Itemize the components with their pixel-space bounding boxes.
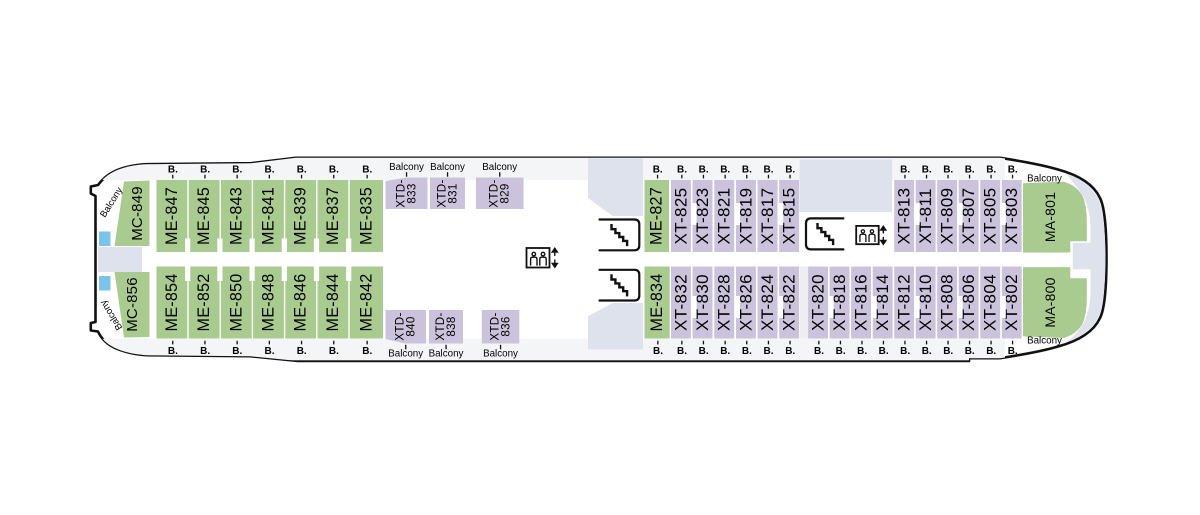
svg-text:B.: B. — [986, 165, 996, 176]
svg-text:XT-809: XT-809 — [938, 188, 957, 245]
svg-text:XT-808: XT-808 — [938, 274, 957, 331]
svg-text:ME-842: ME-842 — [357, 274, 375, 332]
svg-text:B.: B. — [900, 346, 910, 357]
svg-text:B.: B. — [785, 165, 795, 176]
svg-text:836: 836 — [499, 316, 512, 336]
svg-text:B.: B. — [232, 346, 242, 357]
svg-text:XT-820: XT-820 — [809, 274, 828, 331]
svg-text:B.: B. — [168, 346, 178, 357]
svg-text:B.: B. — [362, 165, 372, 176]
svg-text:833: 833 — [405, 183, 418, 203]
svg-text:B.: B. — [785, 346, 795, 357]
svg-text:B.: B. — [232, 165, 242, 176]
svg-text:B.: B. — [329, 165, 339, 176]
svg-text:B.: B. — [677, 346, 687, 357]
svg-text:B.: B. — [836, 346, 846, 357]
svg-text:ME-852: ME-852 — [195, 274, 213, 332]
svg-text:ME-848: ME-848 — [260, 274, 278, 332]
svg-text:B.: B. — [265, 165, 275, 176]
svg-text:XT-832: XT-832 — [672, 274, 691, 331]
svg-text:ME-844: ME-844 — [324, 274, 342, 332]
svg-text:B.: B. — [764, 165, 774, 176]
svg-text:B.: B. — [677, 165, 687, 176]
svg-text:ME-835: ME-835 — [357, 187, 375, 245]
svg-text:B.: B. — [922, 346, 932, 357]
svg-text:B.: B. — [720, 346, 730, 357]
svg-text:B.: B. — [879, 346, 889, 357]
svg-text:Balcony: Balcony — [430, 162, 465, 173]
svg-text:XT-805: XT-805 — [981, 188, 1000, 245]
svg-text:B.: B. — [965, 165, 975, 176]
svg-text:XT-804: XT-804 — [981, 274, 1000, 331]
svg-text:ME-843: ME-843 — [227, 187, 245, 245]
svg-text:Balcony: Balcony — [429, 348, 464, 359]
svg-text:MA-800: MA-800 — [1042, 277, 1058, 327]
svg-text:ME-854: ME-854 — [163, 274, 181, 332]
svg-text:ME-841: ME-841 — [260, 187, 278, 245]
svg-text:B.: B. — [200, 346, 210, 357]
svg-text:B.: B. — [1008, 346, 1018, 357]
svg-text:XT-828: XT-828 — [715, 274, 734, 331]
svg-text:MA-801: MA-801 — [1042, 192, 1058, 242]
svg-text:B.: B. — [943, 346, 953, 357]
svg-text:XT-816: XT-816 — [852, 274, 871, 331]
svg-text:ME-827: ME-827 — [648, 187, 666, 245]
svg-text:XT-813: XT-813 — [895, 188, 914, 245]
svg-text:ME-837: ME-837 — [324, 187, 342, 245]
svg-text:B.: B. — [1008, 165, 1018, 176]
svg-text:Balcony: Balcony — [389, 162, 424, 173]
svg-text:XT-821: XT-821 — [715, 188, 734, 245]
svg-text:Balcony: Balcony — [482, 162, 517, 173]
svg-text:831: 831 — [446, 183, 459, 203]
svg-text:B.: B. — [265, 346, 275, 357]
svg-text:Balcony: Balcony — [1027, 335, 1062, 346]
svg-text:B.: B. — [965, 346, 975, 357]
svg-text:MC-856: MC-856 — [124, 277, 141, 332]
svg-text:B.: B. — [720, 165, 730, 176]
svg-text:Balcony: Balcony — [1027, 173, 1062, 184]
svg-text:ME-839: ME-839 — [292, 187, 310, 245]
svg-text:MC-849: MC-849 — [129, 186, 146, 241]
svg-text:B.: B. — [900, 165, 910, 176]
svg-text:ME-846: ME-846 — [292, 274, 310, 332]
svg-text:B.: B. — [653, 346, 663, 357]
svg-text:B.: B. — [329, 346, 339, 357]
svg-text:B.: B. — [362, 346, 372, 357]
svg-text:B.: B. — [653, 165, 663, 176]
svg-text:XT-825: XT-825 — [672, 188, 691, 245]
svg-text:B.: B. — [699, 165, 709, 176]
svg-text:B.: B. — [742, 346, 752, 357]
svg-text:840: 840 — [405, 316, 418, 336]
svg-text:838: 838 — [445, 316, 458, 336]
svg-text:829: 829 — [499, 183, 512, 203]
svg-text:ME-834: ME-834 — [648, 274, 666, 332]
svg-text:ME-850: ME-850 — [227, 274, 245, 332]
svg-text:ME-847: ME-847 — [163, 187, 181, 245]
svg-text:B.: B. — [814, 346, 824, 357]
svg-text:B.: B. — [922, 165, 932, 176]
svg-text:B.: B. — [297, 346, 307, 357]
svg-text:B.: B. — [986, 346, 996, 357]
svg-text:XT-817: XT-817 — [758, 188, 777, 245]
svg-text:B.: B. — [943, 165, 953, 176]
svg-text:B.: B. — [857, 346, 867, 357]
svg-text:XT-824: XT-824 — [758, 274, 777, 331]
svg-text:B.: B. — [168, 165, 178, 176]
svg-text:B.: B. — [699, 346, 709, 357]
svg-text:XT-812: XT-812 — [895, 274, 914, 331]
svg-text:Balcony: Balcony — [483, 348, 518, 359]
svg-text:Balcony: Balcony — [388, 348, 423, 359]
svg-text:B.: B. — [297, 165, 307, 176]
svg-text:B.: B. — [742, 165, 752, 176]
svg-text:B.: B. — [200, 165, 210, 176]
svg-text:ME-845: ME-845 — [195, 187, 213, 245]
svg-text:B.: B. — [764, 346, 774, 357]
